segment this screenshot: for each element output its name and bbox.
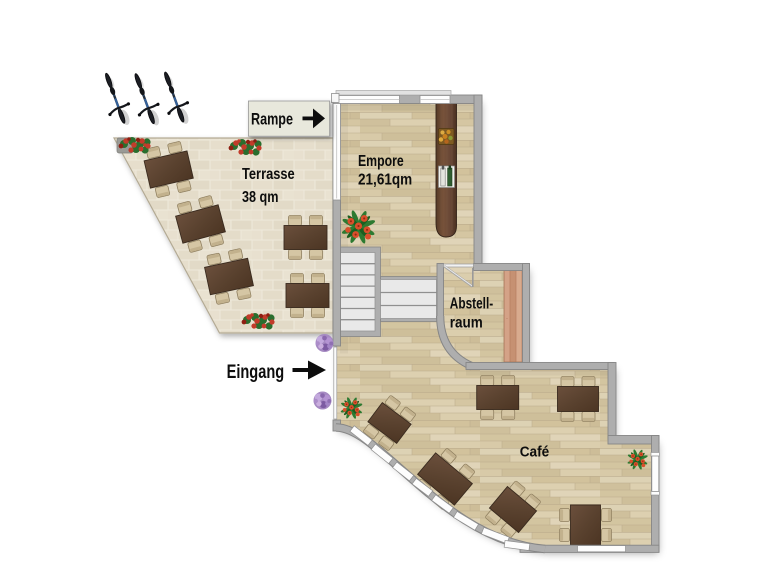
svg-text:21,61qm: 21,61qm (358, 172, 412, 189)
svg-text:raum: raum (450, 315, 483, 332)
svg-text:Eingang: Eingang (227, 362, 285, 383)
svg-text:Terrasse: Terrasse (242, 166, 295, 183)
svg-text:Abstell-: Abstell- (450, 296, 493, 313)
svg-text:38 qm: 38 qm (242, 189, 279, 206)
svg-text:Rampe: Rampe (251, 109, 293, 128)
svg-text:Empore: Empore (358, 153, 404, 170)
svg-text:Café: Café (520, 445, 550, 461)
